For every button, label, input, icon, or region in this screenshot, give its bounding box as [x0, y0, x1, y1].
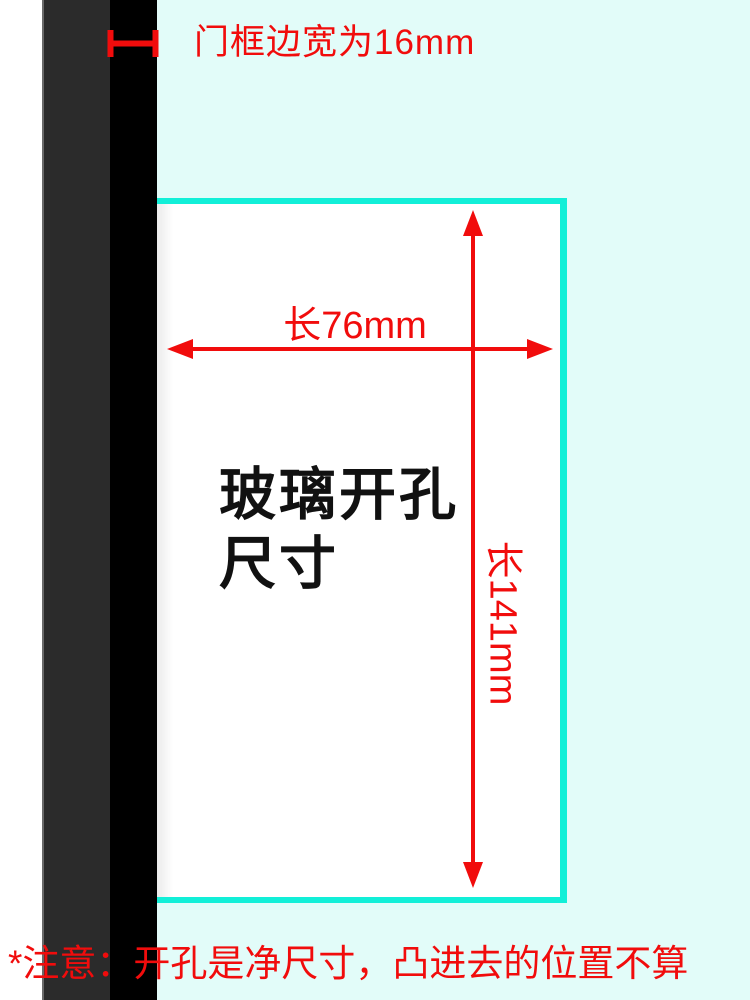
- frame-edge-width-label: 门框边宽为16mm: [194, 24, 475, 62]
- cutout-title: 玻璃开孔 尺寸: [219, 461, 459, 599]
- cutout-height-label: 长141mm: [482, 541, 523, 706]
- footnote-warning: *注意：开孔是净尺寸，凸进去的位置不算: [8, 942, 688, 986]
- product-dimension-diagram: 门框边宽为16mm 长76mm 长141mm 玻璃开孔 尺寸 *注意：开孔是净尺…: [0, 0, 750, 1000]
- door-frame-edge-bar: [110, 0, 157, 1000]
- frame-width-bracket-icon: [107, 30, 159, 57]
- cutout-width-label: 长76mm: [283, 306, 427, 347]
- door-frame-outer-bar: [42, 0, 110, 1000]
